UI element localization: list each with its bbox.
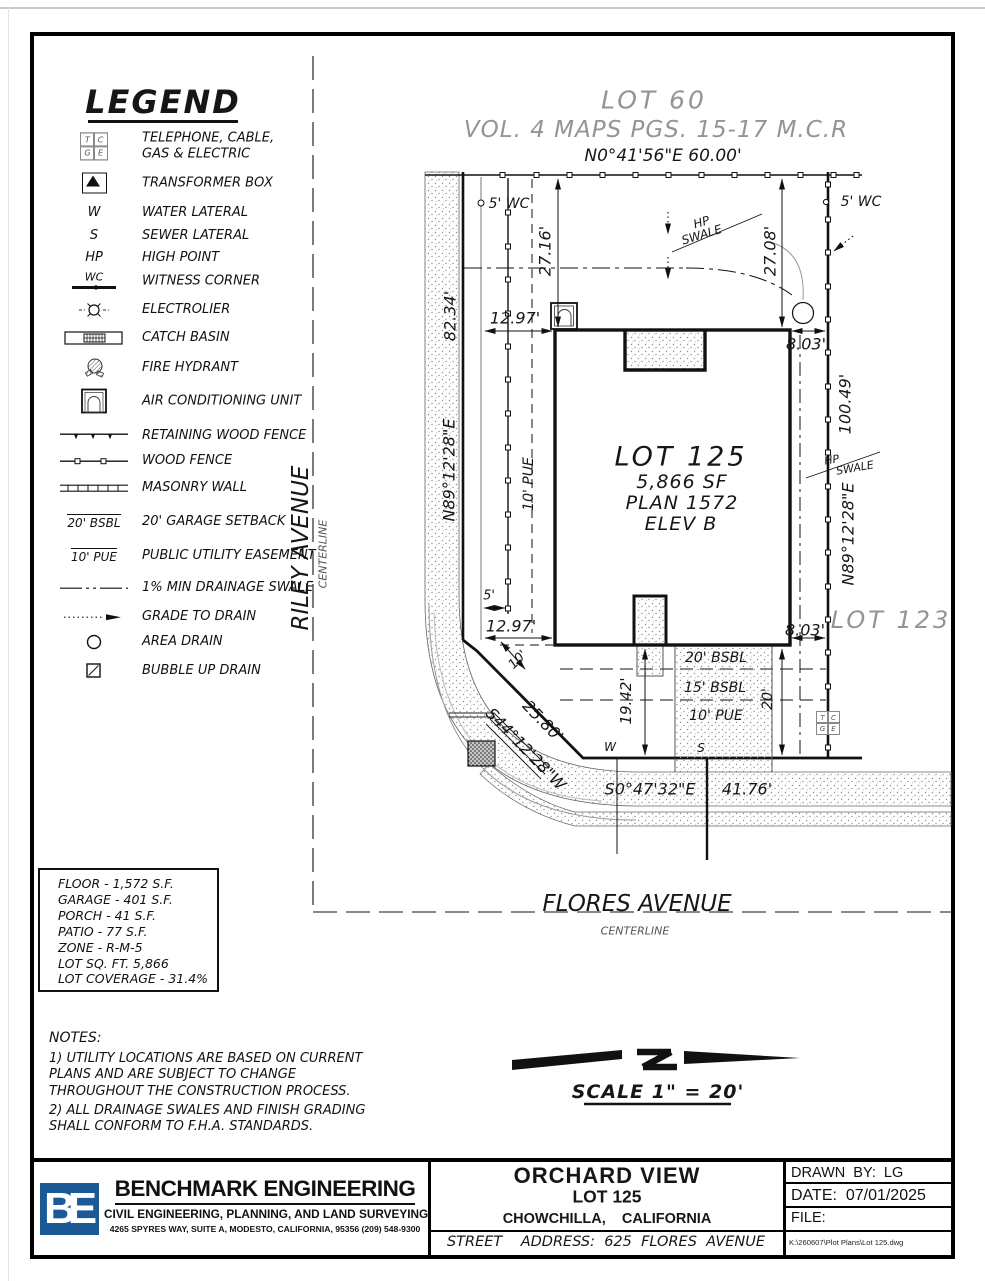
legend-label: SEWER LATERAL [142, 228, 352, 244]
date-divider [786, 1206, 951, 1208]
tcge-icon: TCGE [80, 132, 108, 160]
stat-lot-coverage: LOT COVERAGE - 31.4% [58, 971, 208, 986]
riley-avenue-label: RILEY AVENUE [288, 466, 314, 631]
legend-label: WITNESS CORNER [142, 273, 352, 289]
project-name: ORCHARD VIEW [514, 1163, 701, 1189]
ac-unit-icon [551, 303, 577, 329]
legend-item-ac-unit: AIR CONDITIONING UNIT [46, 389, 376, 414]
dim-19-42: 19.42' [617, 677, 635, 724]
south-bearing-label: S0°47'32"E [605, 780, 696, 799]
grade-to-drain-icon [60, 612, 128, 622]
fire-hydrant-icon [81, 357, 107, 379]
file-label: FILE: [791, 1210, 826, 1226]
firm-name: BENCHMARK ENGINEERING [115, 1176, 416, 1205]
project-street-divider [431, 1230, 783, 1232]
legend-item-sewer: S SEWER LATERAL [46, 228, 376, 244]
legend-label: RETAINING WOOD FENCE [142, 428, 352, 444]
legend-item-grade-to-drain: GRADE TO DRAIN [46, 609, 376, 625]
legend-title-underline [88, 120, 238, 123]
legend-item-catch-basin: CATCH BASIN [46, 330, 376, 346]
firm-text-block: BENCHMARK ENGINEERING CIVIL ENGINEERING,… [104, 1176, 426, 1234]
lot125-plan: PLAN 1572 [626, 492, 739, 514]
pue-10-label: 10' PUE [689, 708, 743, 724]
bsbl-20-label: 20' BSBL [685, 650, 747, 666]
tcge-t: T [81, 133, 94, 146]
legend-label: HIGH POINT [142, 250, 352, 266]
high-point-symbol: HP [46, 251, 142, 266]
legend-item-masonry-wall: MASONRY WALL [46, 480, 376, 496]
masonry-wall-icon [60, 481, 128, 495]
map-reference-label: VOL. 4 MAPS PGS. 15-17 M.C.R [464, 117, 848, 143]
legend-label: MASONRY WALL [142, 480, 352, 496]
east-distance-label: 100.49' [836, 374, 855, 434]
ac-unit-legend-icon [81, 389, 107, 414]
stat-zone: ZONE - R-M-5 [58, 940, 143, 955]
legend-item-water: W WATER LATERAL [46, 205, 376, 221]
retaining-wood-fence-icon [60, 430, 128, 442]
bsbl-symbol: 20' BSBL [67, 514, 120, 530]
titleblock-top-border [34, 1158, 951, 1162]
file-path: K:\260607\Plot Plans\Lot 125.dwg [789, 1238, 903, 1247]
note-1: 1) UTILITY LOCATIONS ARE BASED ON CURREN… [49, 1051, 394, 1100]
dim-8-03-top: 8.03' [786, 335, 826, 354]
dim-8-03-bottom: 8.03' [785, 621, 825, 640]
catch-basin-icon [468, 741, 495, 766]
water-lateral-symbol: W [46, 206, 142, 221]
project-city: CHOWCHILLA, CALIFORNIA [503, 1211, 712, 1227]
legend-item-fire-hydrant: FIRE HYDRANT [46, 357, 376, 379]
legend-item-wood-fence: WOOD FENCE [46, 453, 376, 469]
legend-label: FIRE HYDRANT [142, 360, 352, 376]
witness-corner-right-icon [823, 199, 828, 204]
dim-27-16: 27.16' [536, 226, 555, 276]
legend-item-tcge: TCGE TELEPHONE, CABLE, GAS & ELECTRIC [46, 130, 376, 161]
witness-corner-right-label: 5' WC [841, 194, 882, 210]
west-distance-label: 82.34' [441, 291, 460, 341]
area-drain-icon [793, 303, 814, 324]
bsbl-15-label: 15' BSBL [684, 680, 746, 696]
lot125-sf: 5,866 SF [636, 471, 727, 493]
lot125-title: LOT 125 [614, 442, 747, 473]
north-bearing-label: N0°41'56"E 60.00' [584, 146, 741, 166]
file-divider [786, 1230, 951, 1232]
flores-avenue-label: FLORES AVENUE [542, 891, 731, 917]
pue-symbol: 10' PUE [71, 548, 117, 564]
dim-27-08: 27.08' [761, 226, 780, 276]
legend-item-electrolier: ELECTROLIER [46, 299, 376, 321]
firm-logo: BE [40, 1183, 99, 1235]
riley-centerline-label: CENTERLINE [317, 520, 330, 589]
stat-porch: PORCH - 41 S.F. [58, 908, 156, 923]
area-drain-legend-icon [85, 633, 103, 651]
scale-label: SCALE 1" = 20' [572, 1081, 745, 1103]
lot60-label: LOT 60 [601, 86, 707, 115]
legend-label: TELEPHONE, CABLE, GAS & ELECTRIC [142, 130, 292, 161]
titleblock-divider-1 [428, 1158, 431, 1255]
date: DATE: 07/01/2025 [791, 1187, 926, 1205]
dim-12-97-top: 12.97' [490, 309, 540, 328]
legend-title: LEGEND [85, 83, 241, 121]
west-fence [506, 178, 511, 614]
tcge-plan-icon: TCGE [816, 711, 840, 735]
legend-label: AIR CONDITIONING UNIT [142, 393, 352, 409]
witness-corner-left-icon [478, 200, 484, 206]
water-lateral-label: W [604, 740, 616, 754]
tcge-g: G [81, 146, 94, 159]
transformer-box-icon [82, 173, 107, 194]
stat-patio: PATIO - 77 S.F. [58, 924, 148, 939]
legend-label: BUBBLE UP DRAIN [142, 663, 352, 679]
legend-label: AREA DRAIN [142, 634, 352, 650]
legend-label: ELECTROLIER [142, 302, 352, 318]
note-2: 2) ALL DRAINAGE SWALES AND FINISH GRADIN… [49, 1103, 394, 1136]
drainage-swale-icon [60, 584, 128, 592]
plot-plan-sheet: { "page": {"bg": "#ffffff", "ink": "#111… [0, 0, 985, 1281]
sewer-lateral-symbol: S [46, 229, 142, 244]
firm-address: 4265 SPYRES WAY, SUITE A, MODESTO, CALIF… [104, 1224, 426, 1234]
tcge-t: T [817, 712, 828, 723]
sewer-lateral-label: S [697, 741, 705, 755]
wood-fence-icon [60, 455, 128, 467]
legend-item-retaining-fence: RETAINING WOOD FENCE [46, 428, 376, 444]
dim-5: 5' [483, 589, 495, 604]
legend-item-transformer: TRANSFORMER BOX [46, 173, 376, 194]
tcge-c: C [94, 133, 107, 146]
legend-item-highpoint: HP HIGH POINT [46, 250, 376, 266]
stat-floor: FLOOR - 1,572 S.F. [58, 876, 174, 891]
south-distance-label: 41.76' [722, 780, 772, 799]
legend-label: WOOD FENCE [142, 453, 352, 469]
catch-basin-legend-icon [64, 330, 124, 346]
porch [634, 596, 666, 645]
witness-corner-left-label: 5' WC [489, 196, 530, 212]
lot125-elev: ELEV B [645, 513, 718, 535]
flores-centerline-label: CENTERLINE [601, 925, 670, 938]
stat-garage: GARAGE - 401 S.F. [58, 892, 173, 907]
dim-20: 20' [760, 688, 776, 710]
legend-item-witness-corner: WC WITNESS CORNER [46, 271, 376, 292]
legend-item-bubble-up-drain: BUBBLE UP DRAIN [46, 662, 376, 680]
dim-12-97-bottom: 12.97' [486, 617, 536, 636]
project-lot: LOT 125 [572, 1187, 641, 1208]
tcge-g: G [817, 723, 828, 734]
notes-title: NOTES: [49, 1030, 394, 1048]
west-bearing-label: N89°12'28"E [440, 419, 459, 522]
tcge-c: C [828, 712, 839, 723]
firm-logo-text: BE [40, 1183, 99, 1235]
project-street-address: STREET ADDRESS: 625 FLORES AVENUE [447, 1234, 765, 1250]
pue-west-label: 10' PUE [521, 457, 537, 511]
electrolier-icon [79, 299, 109, 321]
stat-lot-sqft: LOT SQ. FT. 5,866 [58, 956, 169, 971]
legend-label: GRADE TO DRAIN [142, 609, 352, 625]
tcge-e: E [828, 723, 839, 734]
legend-label: TRANSFORMER BOX [142, 175, 352, 191]
firm-tagline: CIVIL ENGINEERING, PLANNING, AND LAND SU… [104, 1207, 426, 1221]
drawn-by-divider [786, 1182, 951, 1184]
legend-item-area-drain: AREA DRAIN [46, 633, 376, 651]
tcge-e: E [94, 146, 107, 159]
legend-label: CATCH BASIN [142, 330, 352, 346]
bubble-up-drain-icon [85, 662, 103, 680]
lot123-label: LOT 123 [831, 606, 952, 634]
legend-label: WATER LATERAL [142, 205, 352, 221]
drawn-by: DRAWN BY: LG [791, 1165, 903, 1181]
witness-corner-icon: WC [72, 271, 116, 292]
east-bearing-label: N89°12'28"E [839, 483, 858, 586]
